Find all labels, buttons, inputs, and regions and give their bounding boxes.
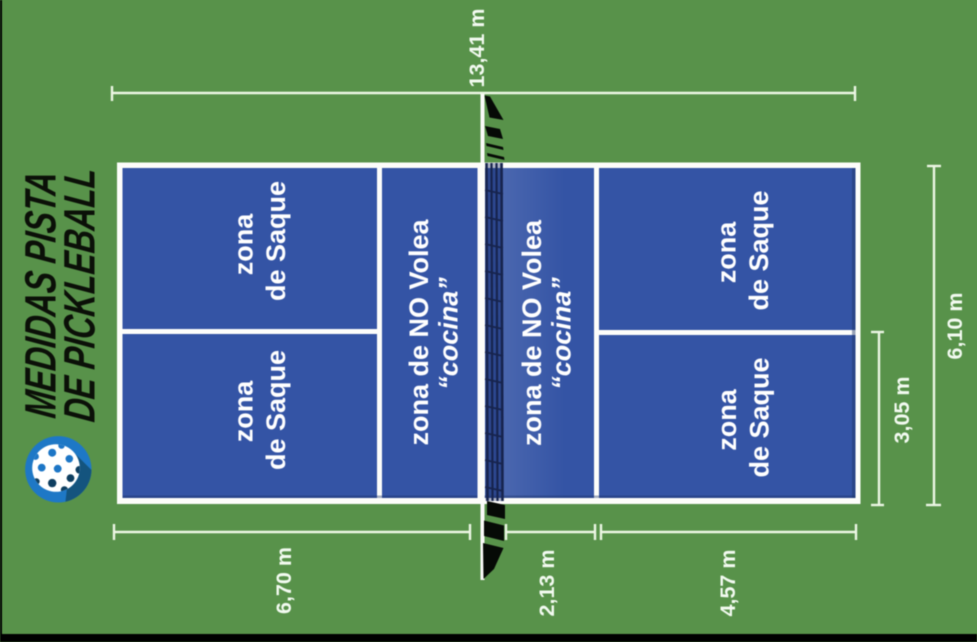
svg-text:DE PICKLEBALL: DE PICKLEBALL (55, 165, 104, 424)
svg-text:13,41 m: 13,41 m (465, 9, 489, 88)
svg-text:de Saque: de Saque (261, 350, 291, 470)
svg-text:de Saque: de Saque (261, 181, 291, 301)
svg-text:6,10 m: 6,10 m (943, 293, 967, 360)
svg-text:“cocina”: “cocina” (547, 277, 577, 390)
svg-text:3,05 m: 3,05 m (890, 377, 914, 444)
svg-text:zona de NO Volea: zona de NO Volea (404, 218, 434, 445)
svg-text:zona de NO Volea: zona de NO Volea (517, 219, 547, 446)
svg-text:de Saque: de Saque (745, 357, 775, 477)
svg-text:de Saque: de Saque (744, 190, 774, 310)
svg-text:4,57 m: 4,57 m (716, 550, 740, 617)
svg-text:zona: zona (712, 221, 742, 283)
svg-text:2,13 m: 2,13 m (535, 550, 559, 617)
svg-text:zona: zona (229, 213, 259, 275)
svg-text:zona: zona (229, 380, 259, 442)
svg-text:6,70 m: 6,70 m (272, 547, 296, 614)
svg-text:zona: zona (712, 388, 742, 450)
svg-text:“cocina”: “cocina” (434, 277, 464, 390)
